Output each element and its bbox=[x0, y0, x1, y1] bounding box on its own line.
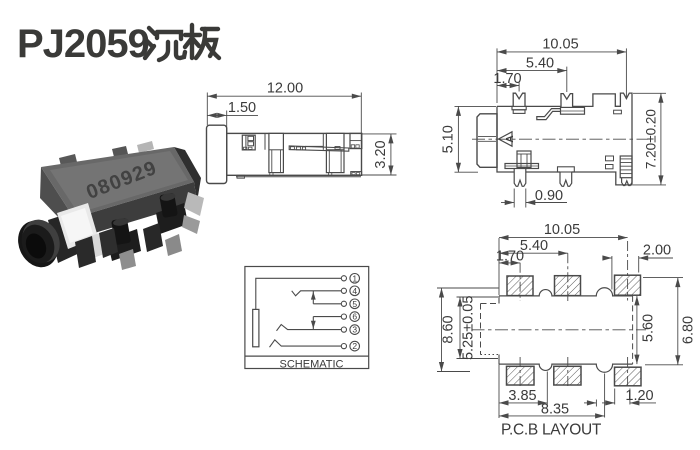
svg-text:1.70: 1.70 bbox=[496, 249, 524, 265]
svg-text:0.90: 0.90 bbox=[535, 188, 563, 204]
svg-text:5.25±0.05: 5.25±0.05 bbox=[461, 296, 477, 360]
svg-text:6: 6 bbox=[352, 312, 357, 322]
svg-text:10.05: 10.05 bbox=[542, 36, 578, 52]
svg-text:2.00: 2.00 bbox=[643, 243, 671, 259]
svg-text:8.60: 8.60 bbox=[441, 315, 457, 343]
svg-text:10.05: 10.05 bbox=[544, 222, 580, 238]
svg-text:A: A bbox=[505, 135, 516, 142]
svg-text:3.85: 3.85 bbox=[508, 388, 536, 404]
svg-text:5.40: 5.40 bbox=[526, 55, 554, 71]
svg-text:5.10: 5.10 bbox=[441, 125, 457, 153]
svg-text:5.60: 5.60 bbox=[641, 314, 657, 342]
svg-text:SCHEMATIC: SCHEMATIC bbox=[280, 358, 344, 370]
svg-text:1: 1 bbox=[352, 273, 357, 283]
svg-text:P.C.B LAYOUT: P.C.B LAYOUT bbox=[501, 422, 602, 439]
svg-text:7.20±0.20: 7.20±0.20 bbox=[644, 109, 659, 169]
svg-text:6.80: 6.80 bbox=[681, 316, 697, 344]
svg-text:3: 3 bbox=[352, 325, 357, 335]
svg-text:12.00: 12.00 bbox=[267, 81, 303, 97]
svg-text:4: 4 bbox=[352, 286, 357, 296]
svg-text:1.20: 1.20 bbox=[625, 388, 653, 404]
svg-text:2: 2 bbox=[352, 341, 357, 351]
svg-text:1.50: 1.50 bbox=[228, 100, 256, 116]
svg-text:3.20: 3.20 bbox=[373, 140, 389, 168]
svg-text:PJ2059: PJ2059 bbox=[17, 22, 149, 66]
svg-text:5: 5 bbox=[352, 299, 357, 309]
svg-text:1.70: 1.70 bbox=[493, 71, 521, 87]
svg-text:8.35: 8.35 bbox=[541, 401, 569, 417]
